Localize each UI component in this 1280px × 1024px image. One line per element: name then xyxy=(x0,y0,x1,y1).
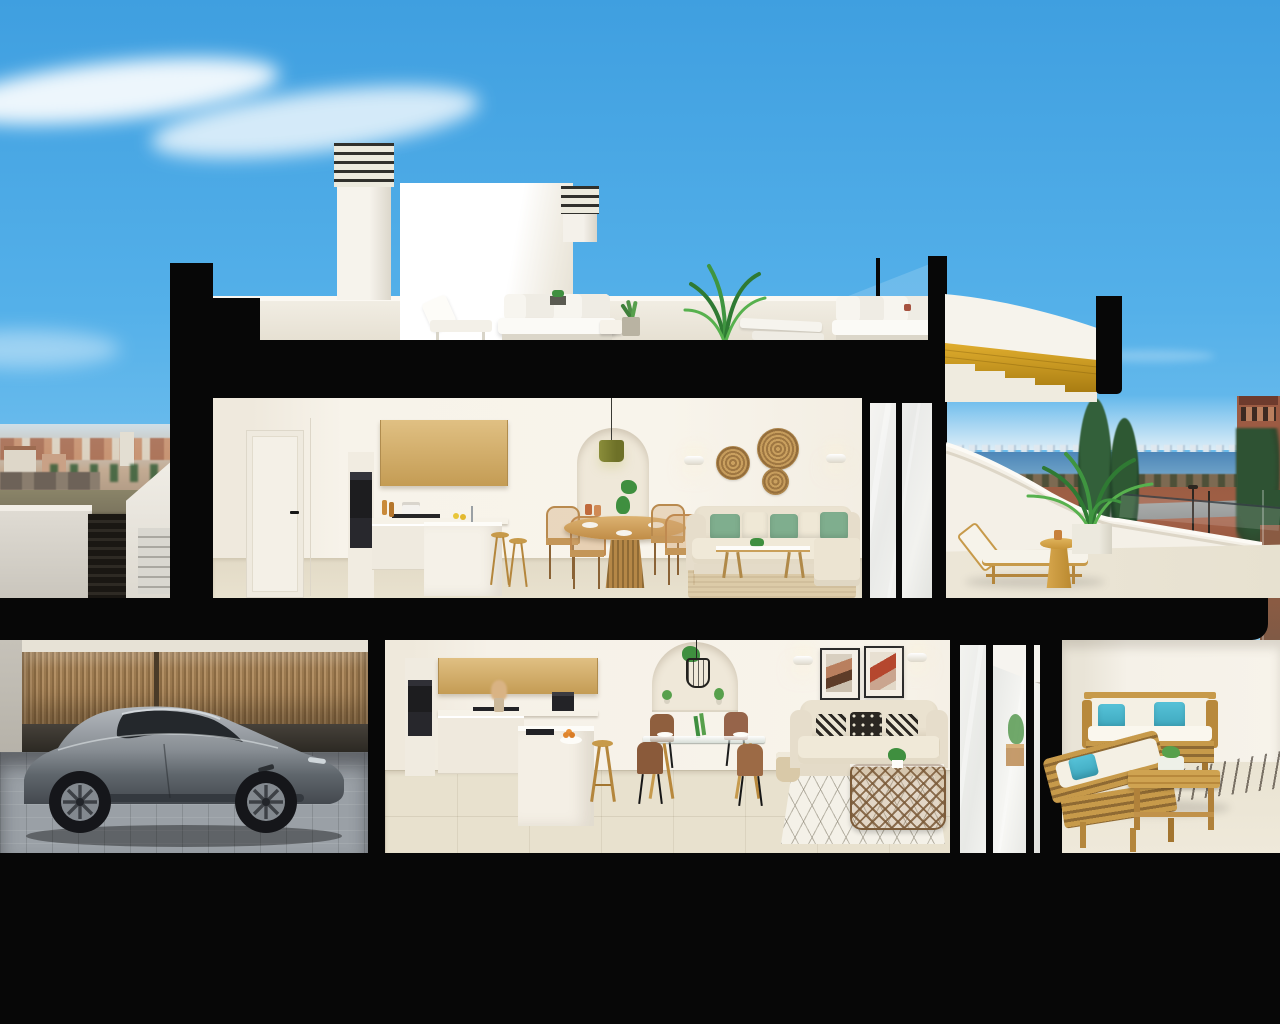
table-leg xyxy=(784,552,791,578)
chimney-small xyxy=(563,186,597,242)
stool-seat xyxy=(592,740,613,747)
sofa-planter xyxy=(550,296,566,305)
terrace-palm-plant xyxy=(1016,444,1166,536)
cut-floor-slab xyxy=(0,598,1268,640)
planter-green xyxy=(552,290,564,297)
door-frame-bar xyxy=(986,640,993,853)
cutaway-render-scene xyxy=(0,0,1280,1024)
door-handle xyxy=(290,511,299,514)
chair-leg xyxy=(654,543,656,575)
pampas-tuft xyxy=(491,680,507,700)
table-column xyxy=(1045,546,1073,588)
wall-sconce xyxy=(684,456,704,465)
table-leg xyxy=(1208,788,1214,830)
chimney-louver-cap xyxy=(561,186,599,214)
cut-canopy-cap xyxy=(1096,296,1122,394)
table-leg xyxy=(722,552,729,578)
aloe-leaf xyxy=(630,301,637,318)
oven-tower xyxy=(405,658,435,776)
door-frame-bar xyxy=(1026,640,1034,853)
cushion-cream xyxy=(742,512,768,540)
stool-leg xyxy=(508,543,515,587)
upper-sliding-door xyxy=(862,398,932,600)
cushion-green xyxy=(820,512,848,540)
wall-sconce xyxy=(907,653,927,662)
art-shapes xyxy=(826,654,852,692)
lower-kitchen-island xyxy=(518,726,594,826)
cut-roof-slab xyxy=(213,340,940,398)
abstract-artwork xyxy=(820,648,860,700)
sofa-chaise xyxy=(814,538,860,586)
cloud xyxy=(0,330,120,368)
built-in-oven xyxy=(350,472,372,548)
table-rail xyxy=(1134,812,1214,817)
cut-roof-step xyxy=(213,298,260,346)
stool-leg xyxy=(590,746,600,802)
lounger-bed xyxy=(740,318,822,332)
cut-wall-left xyxy=(170,263,213,640)
pampas-vase xyxy=(494,698,504,712)
niche-pot-plant xyxy=(714,688,724,700)
abstract-artwork xyxy=(864,646,904,698)
stool-seat xyxy=(509,538,527,544)
chair-leg xyxy=(668,555,670,585)
stool-leg xyxy=(520,543,527,587)
table-leg xyxy=(798,552,805,578)
wall-sconce xyxy=(826,454,846,463)
sofa-seat xyxy=(798,736,940,764)
wicker-wall-plate xyxy=(762,468,789,495)
terrace-stool-through-glass xyxy=(1006,744,1024,766)
bar-stool xyxy=(509,538,529,594)
chimney xyxy=(337,143,391,300)
chimney-louver-cap xyxy=(334,143,394,187)
stool-ring xyxy=(595,784,611,786)
car-front-wheel xyxy=(235,771,297,833)
art-shapes xyxy=(870,652,896,690)
sofa-seat xyxy=(498,318,616,334)
island-faucet xyxy=(471,506,473,522)
olive-pendant-lamp xyxy=(599,440,624,462)
fence-top-beam xyxy=(22,640,368,652)
pendant-cord xyxy=(611,398,612,440)
pampas-deco xyxy=(489,680,509,712)
interior-door xyxy=(246,430,304,598)
wall-sconce xyxy=(793,656,813,665)
sports-car xyxy=(12,684,356,856)
cushion-teal xyxy=(1154,702,1185,729)
oranges xyxy=(563,732,569,738)
chair-leg xyxy=(738,776,744,806)
counter-bottles xyxy=(382,500,387,515)
dining-chair xyxy=(737,744,765,808)
cooktop xyxy=(392,514,440,518)
bar-stool xyxy=(591,740,615,804)
glass-top xyxy=(716,546,810,550)
pendant-cord xyxy=(696,640,697,658)
lounger-back-cushion xyxy=(956,521,1003,572)
cooking-pot xyxy=(402,502,420,514)
roof-aloe-plant xyxy=(618,300,644,336)
door-frame-bar xyxy=(896,398,902,600)
street-parapet-wall xyxy=(0,505,92,600)
door-track xyxy=(950,640,1040,645)
glass-reflection xyxy=(884,398,923,600)
wicker-wall-plate xyxy=(757,428,799,470)
cushion-green xyxy=(770,514,798,540)
palm-planter xyxy=(1072,524,1112,554)
built-in-oven xyxy=(408,680,432,736)
upper-wood-cabinets xyxy=(380,420,508,486)
street-gate xyxy=(88,514,132,600)
terrace-plant-through-glass xyxy=(1008,714,1024,744)
coffee-machine xyxy=(552,692,574,711)
basket-coffee-table xyxy=(850,764,946,830)
roof-stair-cutaway xyxy=(945,288,1105,410)
outdoor-coffee-table xyxy=(1128,756,1220,834)
chair-leg xyxy=(549,545,551,579)
cage-pendant-lamp xyxy=(686,658,710,688)
niche-pot-plant xyxy=(662,690,672,700)
town-tower xyxy=(120,432,134,466)
roof-sofa xyxy=(498,294,616,344)
chair-leg xyxy=(638,774,644,804)
dining-chair xyxy=(637,742,665,806)
oven-tower xyxy=(348,452,374,598)
chaise-leg xyxy=(1080,822,1086,848)
stool-leg xyxy=(490,537,498,585)
wicker-wall-plate xyxy=(716,446,750,480)
table-plant xyxy=(616,496,630,514)
table-plate xyxy=(657,732,673,737)
island-fruit xyxy=(453,513,459,519)
kitchen-base-cabinets xyxy=(438,716,524,774)
lower-apartment-room xyxy=(385,640,1040,853)
island-sink xyxy=(526,729,554,735)
cut-foundation xyxy=(0,853,1280,1024)
chair-back xyxy=(637,742,663,774)
table-leg xyxy=(1134,788,1140,830)
lower-sliding-doors xyxy=(950,640,1040,853)
door-frame-bar xyxy=(862,398,870,600)
niche-plant xyxy=(621,480,637,494)
town-industrial-strip xyxy=(0,472,100,490)
cushion-cream xyxy=(798,512,822,540)
sofa-back-cushions xyxy=(836,296,932,322)
chair-leg xyxy=(657,774,663,804)
chair-back xyxy=(737,744,763,776)
roof-lounge-chair xyxy=(420,298,500,342)
table-leg xyxy=(736,552,743,578)
lower-wood-cabinets xyxy=(438,658,598,694)
chair-leg xyxy=(757,776,763,806)
sofa-seat xyxy=(832,320,936,335)
table-top-slats xyxy=(1128,770,1220,788)
tower-loggia xyxy=(1241,407,1276,421)
upper-coffee-table xyxy=(716,546,810,582)
kitchen-base-cabinets xyxy=(372,524,426,570)
lounge-seat xyxy=(430,320,492,332)
door-frame-bar xyxy=(950,640,960,853)
stool-leg xyxy=(605,746,615,802)
table-centerpiece xyxy=(693,716,700,738)
table-plate xyxy=(582,522,598,528)
cut-wall-garage-divider xyxy=(368,640,385,853)
wall-corner-line xyxy=(310,418,311,596)
tower-roof xyxy=(1239,396,1278,405)
roof-sofa xyxy=(832,296,936,344)
upper-apartment-room xyxy=(213,398,862,600)
table-pedestal xyxy=(604,540,646,588)
door-track xyxy=(862,398,932,403)
sofa-accent xyxy=(904,304,911,311)
exterior-steps xyxy=(138,528,170,594)
planter-green xyxy=(1162,746,1180,758)
fruit-bowl xyxy=(560,736,582,744)
aloe-pot xyxy=(622,317,640,336)
stool-seat xyxy=(491,532,509,538)
car-rear-wheel xyxy=(49,771,111,833)
plant-pot xyxy=(892,760,903,768)
cushion-green xyxy=(710,514,740,540)
